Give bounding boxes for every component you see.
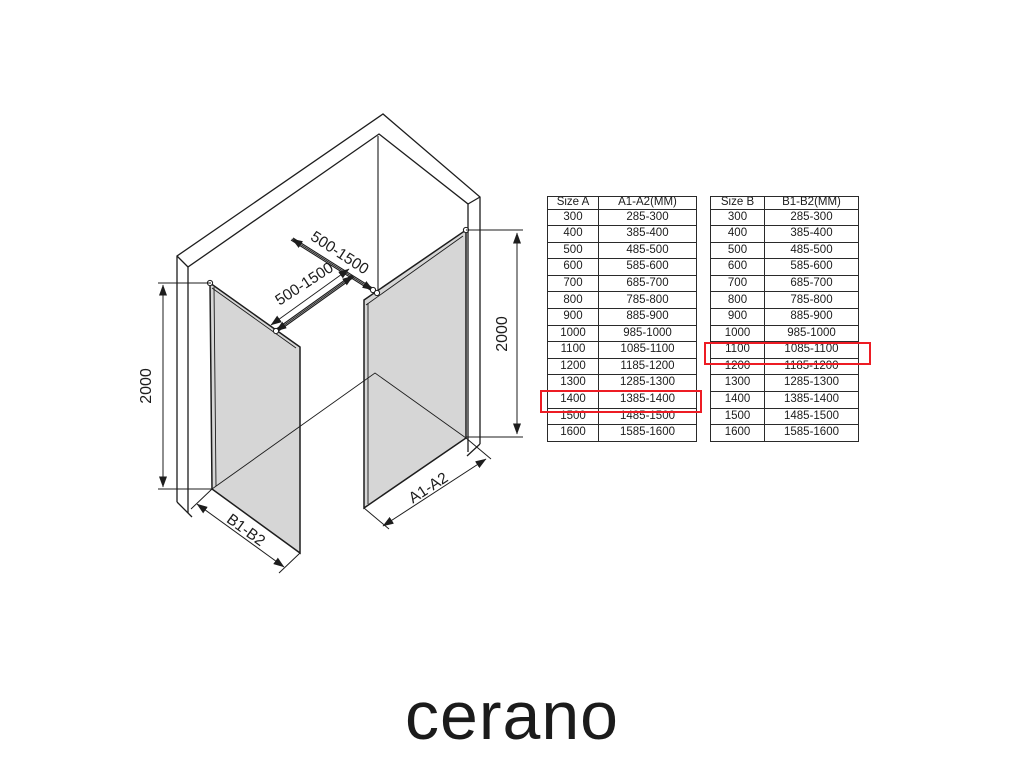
highlight-box-size-1100 bbox=[704, 342, 871, 365]
table-cell: 785-800 bbox=[599, 292, 697, 309]
table-cell: 985-1000 bbox=[765, 325, 859, 342]
table-cell: 600 bbox=[548, 259, 599, 276]
table-cell: 285-300 bbox=[599, 209, 697, 226]
table-row: 300285-300 bbox=[548, 209, 697, 226]
table-cell: 1500 bbox=[711, 408, 765, 425]
table-row: 600585-600 bbox=[548, 259, 697, 276]
table-cell: 685-700 bbox=[599, 275, 697, 292]
table-cell: 585-600 bbox=[765, 259, 859, 276]
table-row: 1000985-1000 bbox=[711, 325, 859, 342]
size-b-header: Size B bbox=[711, 197, 765, 210]
table-row: 700685-700 bbox=[711, 275, 859, 292]
table-cell: 385-400 bbox=[599, 226, 697, 243]
table-row: 500485-500 bbox=[548, 242, 697, 259]
table-cell: 600 bbox=[711, 259, 765, 276]
dimension-height-left: 2000 bbox=[138, 283, 212, 489]
table-cell: 285-300 bbox=[765, 209, 859, 226]
mount-point bbox=[374, 290, 379, 295]
table-cell: 385-400 bbox=[765, 226, 859, 243]
table-cell: 500 bbox=[548, 242, 599, 259]
table-cell: 700 bbox=[548, 275, 599, 292]
table-header-row: Size B B1-B2(MM) bbox=[711, 197, 859, 210]
highlight-box-size-1400 bbox=[540, 390, 702, 413]
shower-isometric-diagram: 500-1500 500-1500 2000 bbox=[0, 0, 1024, 768]
table-cell: 800 bbox=[711, 292, 765, 309]
table-row: 300285-300 bbox=[711, 209, 859, 226]
table-cell: 485-500 bbox=[765, 242, 859, 259]
table-cell: 400 bbox=[548, 226, 599, 243]
table-cell: 685-700 bbox=[765, 275, 859, 292]
table-cell: 800 bbox=[548, 292, 599, 309]
table-row: 700685-700 bbox=[548, 275, 697, 292]
table-cell: 300 bbox=[711, 209, 765, 226]
table-row: 1000985-1000 bbox=[548, 325, 697, 342]
table-cell: 1085-1100 bbox=[599, 342, 697, 359]
table-cell: 300 bbox=[548, 209, 599, 226]
table-row: 500485-500 bbox=[711, 242, 859, 259]
mount-point bbox=[273, 328, 278, 333]
height-dimension-label: 2000 bbox=[494, 316, 511, 352]
table-cell: 700 bbox=[711, 275, 765, 292]
table-cell: 1300 bbox=[711, 375, 765, 392]
table-row: 16001585-1600 bbox=[548, 425, 697, 442]
table-row: 800785-800 bbox=[711, 292, 859, 309]
table-cell: 1000 bbox=[711, 325, 765, 342]
table-cell: 900 bbox=[548, 309, 599, 326]
table-cell: 885-900 bbox=[599, 309, 697, 326]
table-cell: 585-600 bbox=[599, 259, 697, 276]
table-row: 16001585-1600 bbox=[711, 425, 859, 442]
table-cell: 785-800 bbox=[765, 292, 859, 309]
a1-a2-header: A1-A2(MM) bbox=[599, 197, 697, 210]
table-cell: 885-900 bbox=[765, 309, 859, 326]
table-cell: 1200 bbox=[548, 358, 599, 375]
table-row: 900885-900 bbox=[548, 309, 697, 326]
size-table-b: Size B B1-B2(MM) 300285-300400385-400500… bbox=[710, 196, 859, 442]
table-cell: 1285-1300 bbox=[765, 375, 859, 392]
size-a-header: Size A bbox=[548, 197, 599, 210]
table-cell: 485-500 bbox=[599, 242, 697, 259]
table-row: 14001385-1400 bbox=[711, 392, 859, 409]
table-header-row: Size A A1-A2(MM) bbox=[548, 197, 697, 210]
brand-logo: cerano bbox=[0, 682, 1024, 754]
table-row: 13001285-1300 bbox=[711, 375, 859, 392]
b1-b2-header: B1-B2(MM) bbox=[765, 197, 859, 210]
table-row: 15001485-1500 bbox=[711, 408, 859, 425]
table-cell: 1485-1500 bbox=[765, 408, 859, 425]
table-row: 11001085-1100 bbox=[548, 342, 697, 359]
table-row: 900885-900 bbox=[711, 309, 859, 326]
table-cell: 1385-1400 bbox=[765, 392, 859, 409]
table-cell: 985-1000 bbox=[599, 325, 697, 342]
table-cell: 1600 bbox=[711, 425, 765, 442]
table-row: 400385-400 bbox=[711, 226, 859, 243]
table-cell: 1000 bbox=[548, 325, 599, 342]
table-row: 600585-600 bbox=[711, 259, 859, 276]
table-cell: 1585-1600 bbox=[765, 425, 859, 442]
table-row: 12001185-1200 bbox=[548, 358, 697, 375]
dimension-height-right: 2000 bbox=[466, 230, 523, 437]
table-row: 800785-800 bbox=[548, 292, 697, 309]
spec-sheet: 500-1500 500-1500 2000 bbox=[0, 0, 1024, 768]
table-cell: 1185-1200 bbox=[599, 358, 697, 375]
table-cell: 900 bbox=[711, 309, 765, 326]
table-cell: 500 bbox=[711, 242, 765, 259]
table-cell: 1600 bbox=[548, 425, 599, 442]
glass-panels bbox=[210, 230, 466, 553]
table-cell: 1585-1600 bbox=[599, 425, 697, 442]
table-cell: 1100 bbox=[548, 342, 599, 359]
height-dimension-label: 2000 bbox=[138, 368, 155, 404]
right-glass-panel bbox=[364, 230, 466, 508]
table-row: 400385-400 bbox=[548, 226, 697, 243]
table-cell: 1400 bbox=[711, 392, 765, 409]
table-cell: 400 bbox=[711, 226, 765, 243]
